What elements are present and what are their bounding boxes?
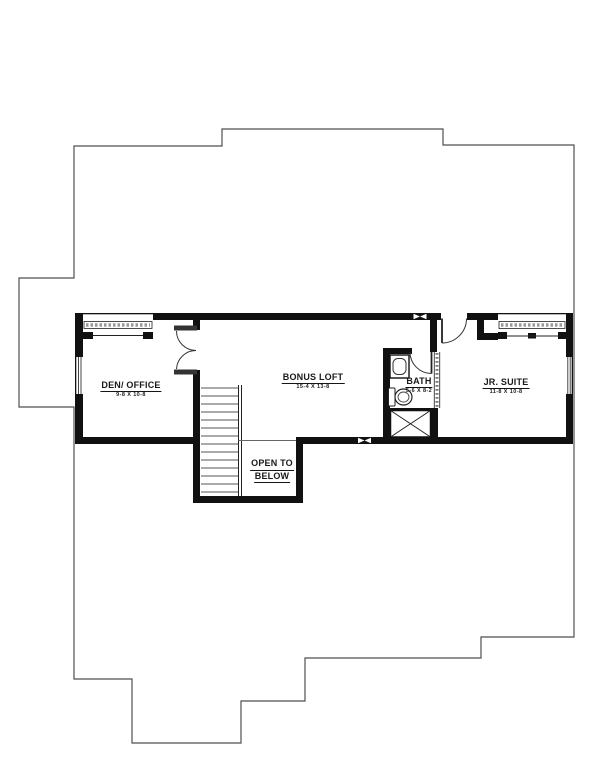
bath-pocket-wall [434, 352, 439, 408]
wall-bottom [75, 437, 573, 444]
gap-right-window [566, 357, 572, 394]
bath-door [410, 352, 432, 374]
den-office-dims: 9-8 X 10-8 [116, 392, 146, 399]
bath-dims: 5-6 X 8-2 [406, 388, 432, 395]
room-label-bath: BATH 5-6 X 8-2 [405, 376, 432, 395]
jr-suite-door [442, 319, 467, 344]
vanity-sink [390, 355, 409, 378]
shower-x-box [391, 411, 431, 438]
wall-bath-top [383, 348, 412, 354]
gap-left-window [76, 357, 83, 394]
bath-name: BATH [405, 376, 432, 388]
floor-plan-page: DEN/ OFFICE 9-8 X 10-8 BONUS LOFT 15-4 X… [0, 0, 600, 776]
window-den-top [83, 322, 153, 340]
roofline-outline [19, 129, 574, 743]
jr-suite-dims: 11-8 X 10-8 [490, 389, 523, 396]
jr-suite-name: JR. SUITE [483, 377, 530, 389]
wall-jr-stub-horiz [477, 333, 498, 340]
open-to-below-line1: OPEN TO [250, 458, 294, 471]
wall-stairwell-right [296, 437, 303, 503]
room-label-open-to-below: OPEN TO BELOW [250, 458, 294, 483]
open-to-below-line2: BELOW [254, 471, 291, 484]
den-office-name: DEN/ OFFICE [100, 380, 161, 392]
bonus-loft-name: BONUS LOFT [282, 372, 345, 384]
gap-jr-window [498, 314, 566, 320]
wall-stairwell-bottom [193, 496, 303, 503]
gap-den-window [83, 314, 153, 320]
gap-jr-door [441, 313, 467, 320]
room-label-den-office: DEN/ OFFICE 9-8 X 10-8 [100, 380, 161, 399]
bonus-loft-dims: 15-4 X 13-8 [296, 384, 329, 391]
room-label-jr-suite: JR. SUITE 11-8 X 10-8 [483, 377, 530, 396]
room-label-bonus-loft: BONUS LOFT 15-4 X 13-8 [282, 372, 345, 391]
wall-loft-jr [430, 320, 437, 352]
wall-shower-right [431, 408, 438, 444]
window-jr-top [498, 322, 566, 340]
